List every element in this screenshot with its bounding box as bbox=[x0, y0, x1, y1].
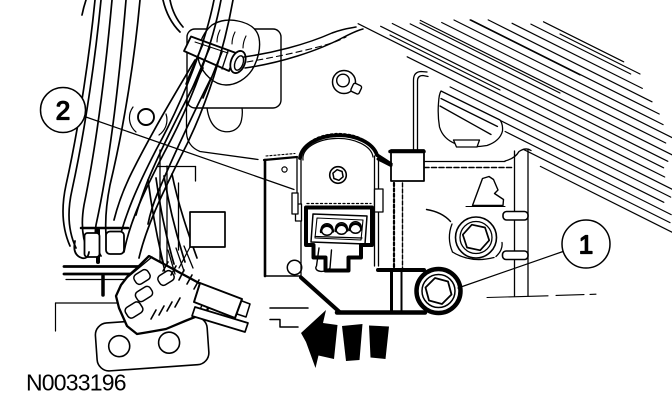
svg-text:1: 1 bbox=[579, 230, 593, 260]
svg-text:N0033196: N0033196 bbox=[26, 370, 126, 396]
svg-text:2: 2 bbox=[56, 96, 70, 126]
